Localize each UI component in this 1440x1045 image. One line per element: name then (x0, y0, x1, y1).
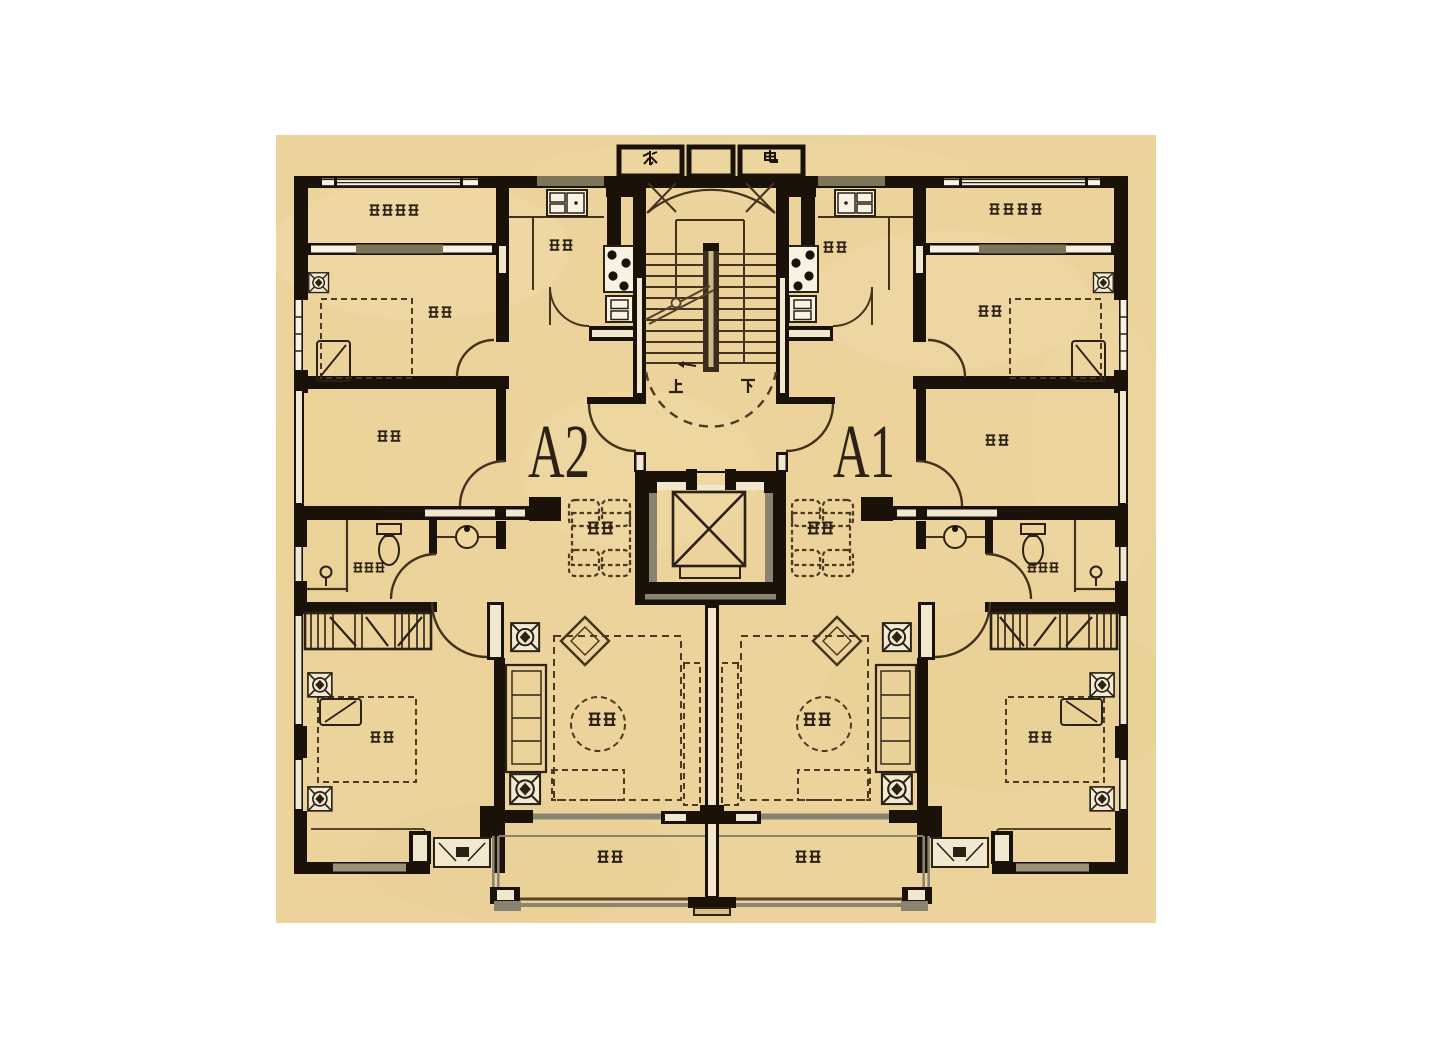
svg-text:A1: A1 (833, 410, 895, 494)
svg-text:A2: A2 (528, 410, 590, 494)
